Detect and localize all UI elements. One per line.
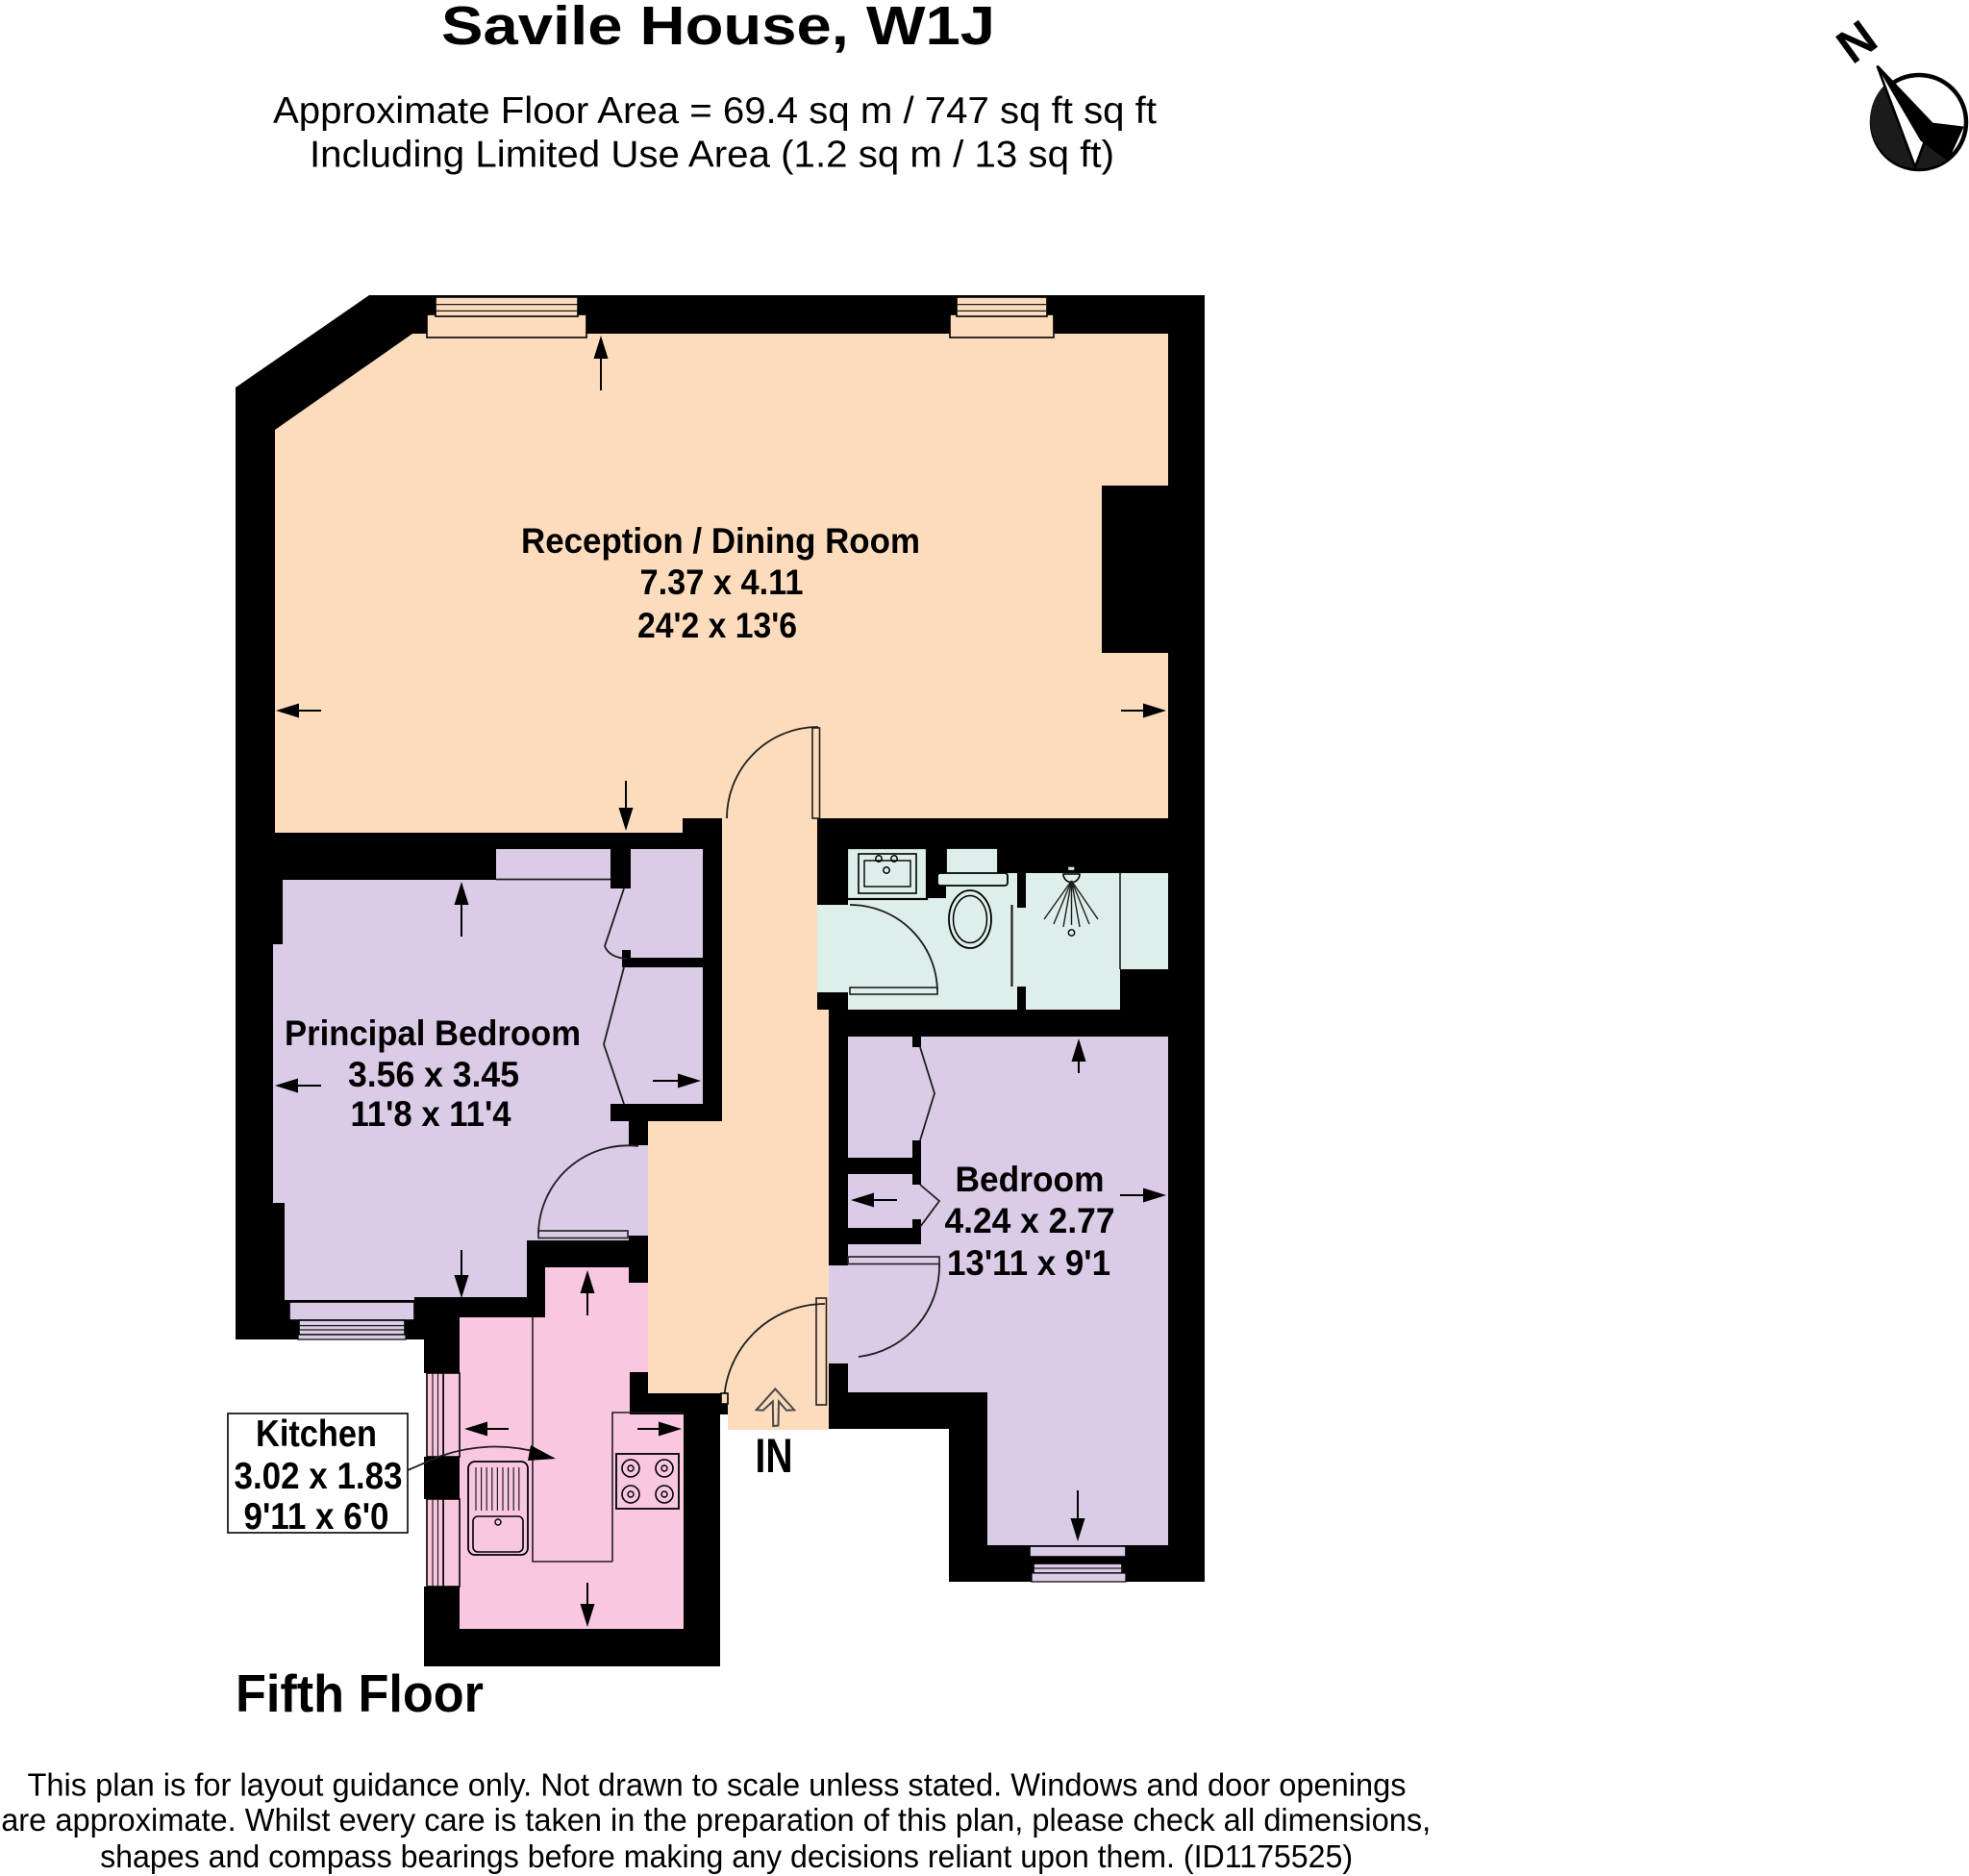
svg-text:3.56 x 3.45: 3.56 x 3.45 xyxy=(348,1055,519,1094)
svg-text:Approximate Floor Area = 69.4: Approximate Floor Area = 69.4 sq m / 747… xyxy=(273,90,1157,132)
svg-text:shapes and compass bearings be: shapes and compass bearings before makin… xyxy=(100,1839,1353,1875)
svg-text:Savile House, W1J: Savile House, W1J xyxy=(441,0,995,57)
svg-text:IN: IN xyxy=(756,1429,793,1483)
svg-text:11'8 x 11'4: 11'8 x 11'4 xyxy=(351,1094,511,1134)
svg-text:Kitchen: Kitchen xyxy=(256,1413,377,1455)
svg-text:Bedroom: Bedroom xyxy=(956,1160,1105,1199)
svg-text:This plan is for layout guidan: This plan is for layout guidance only. N… xyxy=(28,1767,1407,1803)
svg-text:are approximate. Whilst every: are approximate. Whilst every care is ta… xyxy=(1,1803,1431,1838)
svg-text:24'2 x 13'6: 24'2 x 13'6 xyxy=(637,606,797,645)
svg-text:4.24 x 2.77: 4.24 x 2.77 xyxy=(945,1201,1115,1240)
svg-text:9'11 x 6'0: 9'11 x 6'0 xyxy=(244,1496,389,1538)
svg-text:13'11 x 9'1: 13'11 x 9'1 xyxy=(947,1243,1110,1283)
svg-text:7.37 x 4.11: 7.37 x 4.11 xyxy=(640,563,804,602)
svg-text:3.02 x 1.83: 3.02 x 1.83 xyxy=(235,1456,403,1497)
svg-text:Principal Bedroom: Principal Bedroom xyxy=(285,1013,581,1053)
svg-text:Fifth Floor: Fifth Floor xyxy=(236,1663,484,1723)
svg-text:Including Limited Use Area (1.: Including Limited Use Area (1.2 sq m / 1… xyxy=(310,135,1114,176)
svg-text:Reception / Dining Room: Reception / Dining Room xyxy=(521,521,920,561)
